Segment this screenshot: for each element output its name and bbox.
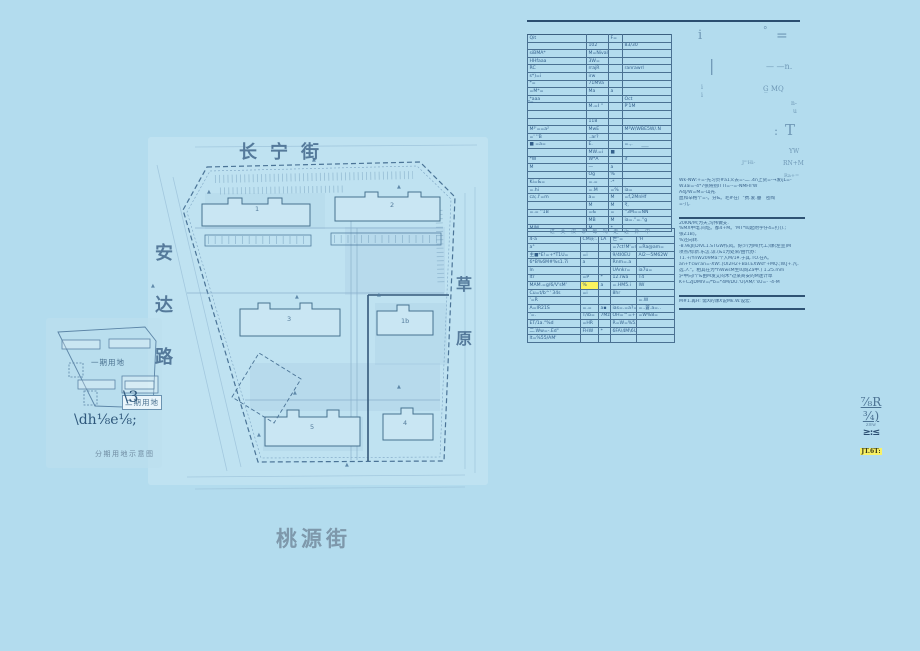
table-cell: * bbox=[599, 327, 611, 335]
table-cell: 102 bbox=[587, 42, 609, 50]
table-cell bbox=[637, 259, 675, 267]
table-cell: a° bbox=[528, 244, 581, 252]
table-cell: E. bbox=[587, 141, 609, 149]
inset-caption: 分期用地示意图 bbox=[95, 449, 155, 459]
table-cell bbox=[609, 156, 623, 164]
table-cell bbox=[599, 289, 611, 297]
table-cell: lt=%55/AM' bbox=[528, 335, 581, 343]
table-cell: M bbox=[587, 202, 609, 210]
table-cell bbox=[609, 50, 623, 58]
building-number: 3 bbox=[287, 315, 291, 323]
faint-glyph: i bbox=[701, 92, 703, 99]
table-cell: =.W bbox=[637, 297, 675, 305]
table-cell: Qit bbox=[528, 35, 587, 43]
scanned-siteplan-page: 长宁街 安达路 草原 桃源街 一期用地 二期用地 分期用地示意图 \3 \dh⅛… bbox=[0, 0, 920, 651]
table-cell: ia= bbox=[623, 186, 672, 194]
table-cell: ia=.''=.''g bbox=[623, 217, 672, 225]
street-char: 草 bbox=[456, 271, 472, 295]
table-cell bbox=[609, 57, 623, 65]
table-cell bbox=[623, 133, 672, 141]
table-cell: 4-a bbox=[528, 236, 581, 244]
table-cell: ranrawrl bbox=[623, 65, 672, 73]
garage-strip-1 bbox=[205, 235, 311, 246]
table-cell: = bbox=[609, 209, 623, 217]
faint-glyph: G̲ MQ bbox=[763, 85, 784, 93]
building-number: 2 bbox=[390, 201, 394, 209]
table-cell: 世"= bbox=[611, 236, 637, 244]
faint-glyph: | bbox=[709, 56, 714, 75]
table-cell: Og bbox=[587, 171, 609, 179]
table-cell: T4 bbox=[637, 274, 675, 282]
table-cell: 3W= bbox=[587, 57, 609, 65]
table-cell bbox=[528, 42, 587, 50]
table-cell: a bbox=[581, 259, 599, 267]
table-cell bbox=[609, 80, 623, 88]
survey-triangle-icon: ▲ bbox=[345, 462, 349, 468]
table-cell: =M*= bbox=[528, 88, 587, 96]
table-cell bbox=[623, 50, 672, 58]
table-cell: 6*B%6M#%s1.7i bbox=[528, 259, 581, 267]
table-cell bbox=[599, 297, 611, 305]
table-cell bbox=[623, 171, 672, 179]
table-cell: =HR bbox=[581, 320, 599, 328]
table-cell: 'H bbox=[637, 236, 675, 244]
table-cell: a▪ bbox=[599, 304, 611, 312]
table-cell: LA bbox=[599, 236, 611, 244]
table-cell: a bbox=[609, 88, 623, 96]
table-cell: =i bbox=[581, 251, 599, 259]
faint-glyph: T bbox=[785, 121, 795, 139]
table-cell: ET/1a.°%d bbox=[528, 320, 581, 328]
table-cell bbox=[581, 244, 599, 252]
table-cell bbox=[623, 72, 672, 80]
table-cell bbox=[637, 289, 675, 297]
table-cell: Oct bbox=[623, 95, 672, 103]
table-cell: 71MVa bbox=[587, 80, 609, 88]
table-cell: ■ =a= bbox=[528, 141, 587, 149]
table-cell: ■ bbox=[609, 148, 623, 156]
survey-triangle-icon: ▲ bbox=[295, 294, 299, 300]
table-cell: 二.Ww=-.Ed" bbox=[528, 327, 581, 335]
table-cell bbox=[609, 118, 623, 126]
handwritten-mark-1: \3 bbox=[123, 387, 139, 406]
table-cell: =.M bbox=[587, 186, 609, 194]
table-cell bbox=[528, 118, 587, 126]
table-cell bbox=[609, 72, 623, 80]
table-cell bbox=[587, 110, 609, 118]
survey-triangle-icon: ▲ bbox=[293, 390, 297, 396]
faint-glyph: n- bbox=[791, 100, 797, 107]
table-cell: '=. bbox=[528, 312, 581, 320]
table-cell: M=Nival bbox=[587, 50, 609, 58]
table-cell: P'1M bbox=[623, 103, 672, 111]
table-cell bbox=[623, 179, 672, 187]
table-cell: if bbox=[623, 156, 672, 164]
table-cell: =Ra@am= bbox=[637, 244, 675, 252]
faint-glyph: YW bbox=[789, 148, 799, 155]
stamp-line: ¾) bbox=[849, 409, 893, 423]
table-cell: HHfaaa bbox=[528, 57, 587, 65]
building-2 bbox=[335, 192, 440, 221]
street-name-changning: 长宁街 bbox=[239, 138, 332, 164]
table-cell bbox=[528, 148, 587, 156]
table-cell bbox=[599, 320, 611, 328]
survey-triangle-icon: ▲ bbox=[151, 283, 155, 289]
survey-triangle-icon: ▲ bbox=[257, 432, 261, 438]
notes-block: Wk-NW:+=-先习贞#a1义去=-二..4n上货=-→发ijL=-W3ai=… bbox=[679, 178, 805, 312]
table-cell: ln bbox=[528, 266, 581, 274]
table-cell: M²W/WBE5W/.N bbox=[623, 126, 672, 134]
table-cell bbox=[581, 335, 599, 343]
table-cell: FHW bbox=[581, 327, 599, 335]
table-cell: =& bbox=[587, 209, 609, 217]
table-cell: rrajR bbox=[587, 65, 609, 73]
table-cell: siBMA* bbox=[528, 50, 587, 58]
building-6 bbox=[383, 408, 433, 440]
table-cell: =.= ''1B bbox=[528, 209, 587, 217]
faint-glyph: u bbox=[793, 108, 797, 115]
table-cell: =7ct!M'=n bbox=[611, 244, 637, 252]
table-cell: =% bbox=[609, 186, 623, 194]
street-char: 安 bbox=[155, 239, 173, 265]
table-cell: M bbox=[609, 202, 623, 210]
siteplan-drawing bbox=[45, 135, 490, 565]
table-cell: A=IR21S bbox=[528, 304, 581, 312]
table-cell: 83/30 bbox=[623, 42, 672, 50]
table1-side-label: ᵃ= bbox=[528, 100, 534, 105]
table-cell bbox=[623, 35, 672, 43]
table-cell bbox=[623, 118, 672, 126]
table-cell: Ki=&= bbox=[528, 179, 587, 187]
survey-triangle-icon: ▲ bbox=[377, 292, 381, 298]
table-cell bbox=[609, 126, 623, 134]
table-cell bbox=[528, 202, 587, 210]
building-number: 5 bbox=[310, 423, 314, 431]
table-cell bbox=[587, 35, 609, 43]
table-cell: a= bbox=[587, 194, 609, 202]
faint-glyph: i bbox=[701, 84, 703, 91]
table-cell: * bbox=[599, 274, 611, 282]
handwritten-mark-2: \dh⅛e⅛; bbox=[74, 412, 137, 428]
table-cell bbox=[609, 141, 623, 149]
table-cell bbox=[528, 103, 587, 111]
table-cell: ₹, bbox=[623, 202, 672, 210]
table-cell: % bbox=[609, 171, 623, 179]
table-cell: ia7u= bbox=[637, 266, 675, 274]
notes-divider bbox=[679, 217, 805, 219]
faint-glyph: — —n. bbox=[766, 62, 792, 71]
table-cell: MB bbox=[587, 217, 609, 225]
faint-glyph: Ra+= bbox=[784, 173, 799, 179]
table-cell: R=W=%5.1.1 bbox=[611, 320, 637, 328]
note-line: K+C2JDMIV=/*b=*4M/DU.'U(AM/:'sU=- -4-M bbox=[679, 280, 805, 286]
table-cell: ca;.l'=m bbox=[528, 194, 587, 202]
table-cell bbox=[623, 80, 672, 88]
table-cell bbox=[623, 88, 672, 96]
table-cell: =.hi bbox=[528, 186, 587, 194]
table-cell: =f,2MnHf bbox=[623, 194, 672, 202]
table-cell: '=R bbox=[528, 297, 581, 305]
table-cell bbox=[637, 335, 675, 343]
table-cell: -* bbox=[609, 179, 623, 187]
table-cell bbox=[609, 42, 623, 50]
table-cell: ltr bbox=[528, 274, 581, 282]
table-cell: =.= bbox=[581, 304, 599, 312]
table-cell bbox=[637, 320, 675, 328]
table-cell: =.HM5.i bbox=[611, 282, 637, 290]
table-cell: 7Mz= bbox=[599, 312, 611, 320]
building-number: 1b bbox=[401, 317, 409, 325]
indicator-sheet: QitF=10283/30siBMA*M=NivalHHfaaa3W=RCrra… bbox=[527, 20, 803, 460]
table-cell: =W%8= bbox=[637, 312, 675, 320]
survey-triangle-icon: ▲ bbox=[312, 157, 316, 163]
table-cell: =' ''B bbox=[528, 133, 587, 141]
faint-glyph: ° bbox=[763, 26, 768, 36]
table-cell: — bbox=[587, 164, 609, 172]
table-cell: W*A bbox=[587, 156, 609, 164]
table-cell: *aaa bbox=[528, 95, 587, 103]
table-cell: 主■*E!=+*T1U= bbox=[528, 251, 581, 259]
note-line: =-儿. bbox=[679, 202, 805, 208]
table-cell: ias=.=a?=8.*7M bbox=[611, 304, 637, 312]
survey-triangle-icon: ▲ bbox=[397, 384, 401, 390]
street-char: 路 bbox=[155, 343, 173, 369]
faint-glyph: : bbox=[774, 124, 778, 138]
table-cell bbox=[609, 95, 623, 103]
faint-glyph: i bbox=[698, 28, 702, 43]
table-cell bbox=[599, 335, 611, 343]
table-cell: OH=™=+7/3M bbox=[611, 312, 637, 320]
table-cell bbox=[609, 103, 623, 111]
table-cell: % bbox=[581, 282, 599, 290]
street-name-caoyuan: 草原 bbox=[456, 271, 472, 349]
stamp-line: JT.6T: bbox=[860, 448, 881, 455]
table-cell bbox=[611, 335, 637, 343]
phase1-label: 一期用地 bbox=[91, 357, 125, 368]
table-cell: ''3M==NN bbox=[623, 209, 672, 217]
faint-glyph: RN+M bbox=[783, 160, 804, 167]
table-cell: F= bbox=[609, 35, 623, 43]
table-cell bbox=[637, 327, 675, 335]
siteplan-map: 长宁街 安达路 草原 桃源街 一期用地 二期用地 分期用地示意图 \3 \dh⅛… bbox=[45, 135, 490, 565]
table-cell: irw bbox=[587, 72, 609, 80]
table-cell bbox=[528, 217, 587, 225]
notes-divider bbox=[679, 295, 805, 297]
stamp-line: ≥:≤ bbox=[849, 428, 893, 438]
table-cell: 8hr bbox=[611, 289, 637, 297]
table-cell bbox=[528, 110, 587, 118]
table-cell: =.= bbox=[587, 179, 609, 187]
table-cell: MAM.=g/6/V'sM' bbox=[528, 282, 581, 290]
survey-triangle-icon: ▲ bbox=[207, 189, 211, 195]
faint-glyph: — bbox=[641, 142, 649, 151]
table-cell bbox=[599, 251, 611, 259]
table-cell bbox=[528, 171, 587, 179]
table-cell: UAnkr= bbox=[611, 266, 637, 274]
table-cell: 6FA\4M\6U*/= bbox=[611, 327, 637, 335]
table-cell: M bbox=[528, 164, 587, 172]
street-name-taoyuan: 桃源街 bbox=[276, 523, 351, 553]
table-cell: =P bbox=[581, 274, 599, 282]
table-cell: *W bbox=[528, 156, 587, 164]
table-cell bbox=[623, 57, 672, 65]
table-cell bbox=[599, 259, 611, 267]
table-cell: MwE bbox=[587, 126, 609, 134]
note-line: an+f'cwi'an=-XW:.[OI2H2+Bal.EXWsf'+MQ.;W… bbox=[679, 262, 805, 268]
table-cell bbox=[581, 297, 599, 305]
stamp-block: ⅞R¾)z≡w≥:≤JT.6T: bbox=[849, 395, 893, 457]
table-cell: Cu=t/b^' 34s bbox=[528, 289, 581, 297]
table-cell: a bbox=[609, 164, 623, 172]
table-cell: =..蒼.a=.. bbox=[637, 304, 675, 312]
table-cell: 118 bbox=[587, 118, 609, 126]
table-cell: MW.=i bbox=[587, 148, 609, 156]
table-cell: M bbox=[609, 194, 623, 202]
table-cell bbox=[611, 297, 637, 305]
street-name-anda: 安达路 bbox=[155, 239, 173, 369]
stamp-line: ⅞R bbox=[849, 395, 893, 409]
table-cell: Rnm=.a bbox=[611, 259, 637, 267]
table-cell: IW bbox=[637, 282, 675, 290]
table-cell bbox=[623, 110, 672, 118]
indicator-table-2: 进 芙 汉 茅 每 吗 走 近 外 中4-aCM灰:.LA世"='Ha°=7ct… bbox=[527, 228, 675, 343]
table-cell: s*)=i bbox=[528, 72, 587, 80]
table-cell bbox=[599, 266, 611, 274]
table-cell: M bbox=[609, 217, 623, 225]
note-line: M#1.再H: 需X的课X说Mk.W.设宏. bbox=[679, 299, 805, 305]
table-cell: 12.rwa bbox=[611, 274, 637, 282]
building-number: 1 bbox=[255, 205, 259, 213]
table-cell: ..ar? bbox=[587, 133, 609, 141]
table-cell: RC bbox=[528, 65, 587, 73]
table-cell bbox=[609, 65, 623, 73]
table-cell: Ma bbox=[587, 88, 609, 96]
table-cell bbox=[587, 95, 609, 103]
street-char: 原 bbox=[456, 325, 472, 349]
survey-triangle-icon: ▲ bbox=[397, 184, 401, 190]
table-cell: a bbox=[599, 282, 611, 290]
table-cell: M²'==a² bbox=[528, 126, 587, 134]
table-cell: *= bbox=[528, 80, 587, 88]
notes-divider bbox=[679, 308, 805, 310]
table-cell: M.=I '' bbox=[587, 103, 609, 111]
table-cell: 9/4I0EU bbox=[611, 251, 637, 259]
faint-glyph: J"'Hi- bbox=[742, 160, 755, 166]
table-cell bbox=[623, 164, 672, 172]
table-cell bbox=[609, 110, 623, 118]
table-cell bbox=[581, 266, 599, 274]
sheet-top-rule bbox=[527, 20, 800, 22]
table-cell: =i bbox=[581, 289, 599, 297]
indicator-table-1: QitF=10283/30siBMA*M=NivalHHfaaa3W=RCrra… bbox=[527, 34, 672, 232]
table-cell bbox=[609, 133, 623, 141]
building-number: 4 bbox=[403, 419, 407, 427]
table-cell bbox=[599, 244, 611, 252]
table2-title: 进 芙 汉 茅 每 吗 走 近 外 中 bbox=[528, 229, 675, 237]
table-cell: T/ib= bbox=[581, 312, 599, 320]
street-char: 达 bbox=[155, 291, 173, 317]
table-cell: Al2—5M62W bbox=[637, 251, 675, 259]
faint-glyph: = bbox=[776, 28, 788, 44]
table-cell: CM灰:. bbox=[581, 236, 599, 244]
